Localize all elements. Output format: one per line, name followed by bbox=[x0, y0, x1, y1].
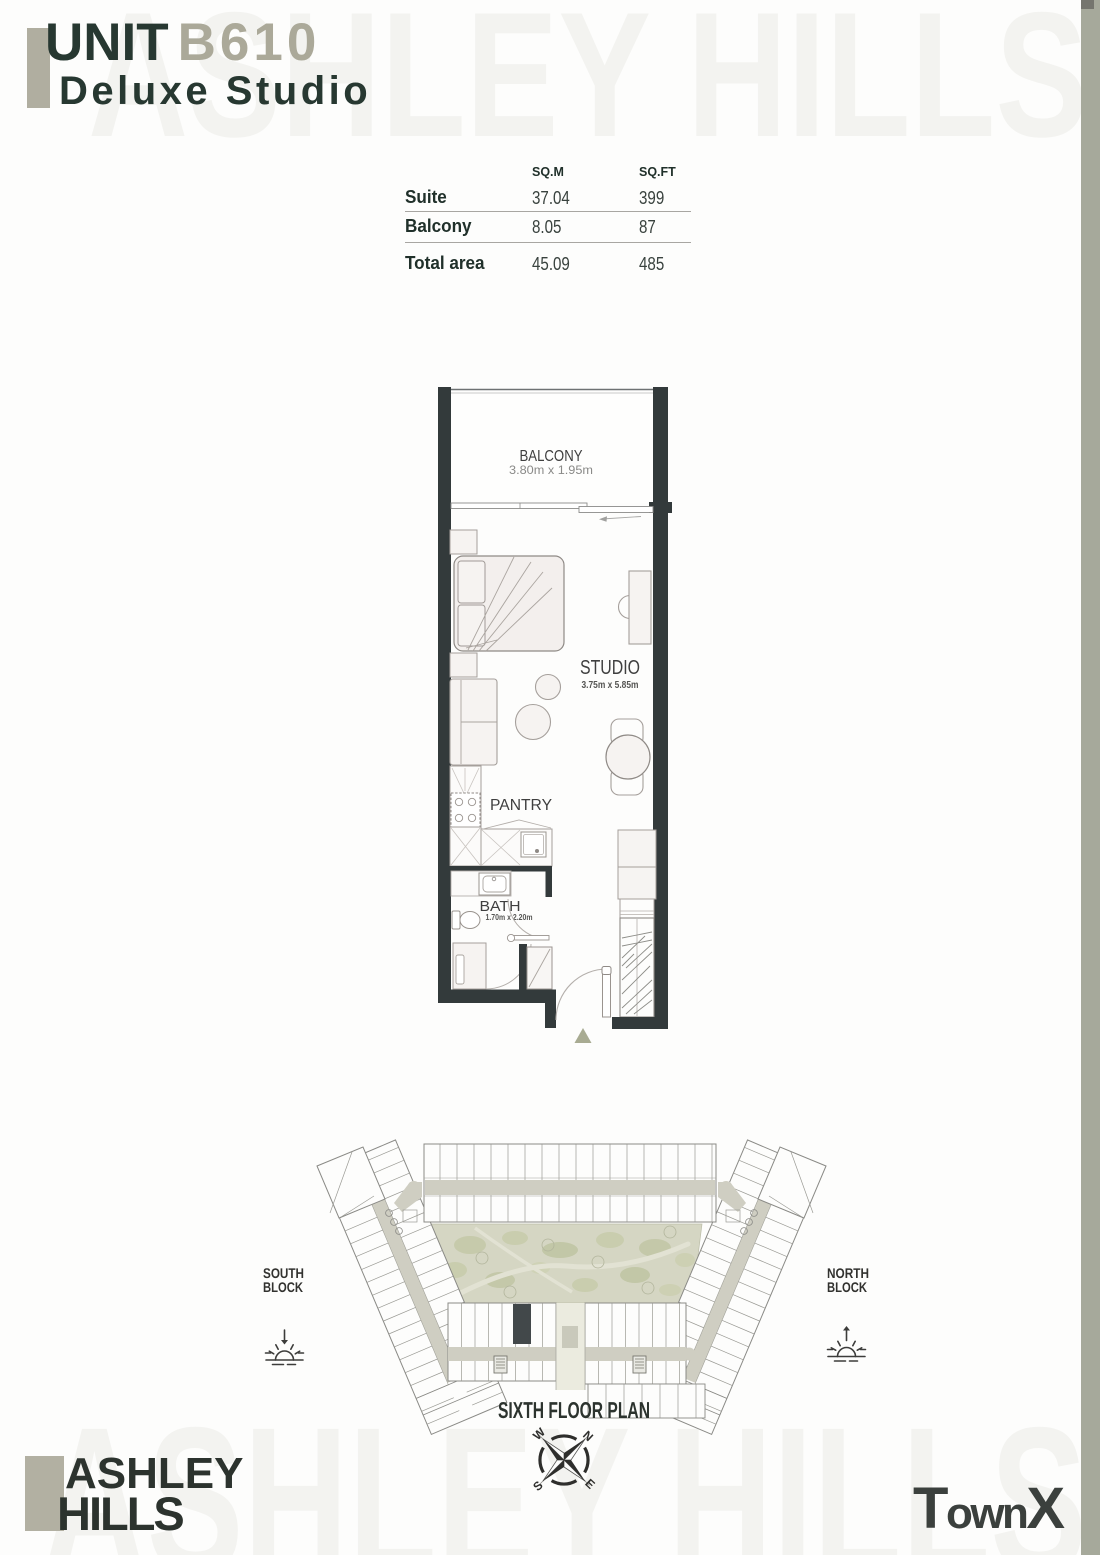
svg-text:SIXTH FLOOR PLAN: SIXTH FLOOR PLAN bbox=[498, 1397, 650, 1423]
svg-text:E: E bbox=[582, 1476, 597, 1492]
svg-text:BLOCK: BLOCK bbox=[827, 1279, 867, 1295]
svg-text:BLOCK: BLOCK bbox=[263, 1279, 303, 1295]
svg-text:W: W bbox=[530, 1425, 548, 1443]
